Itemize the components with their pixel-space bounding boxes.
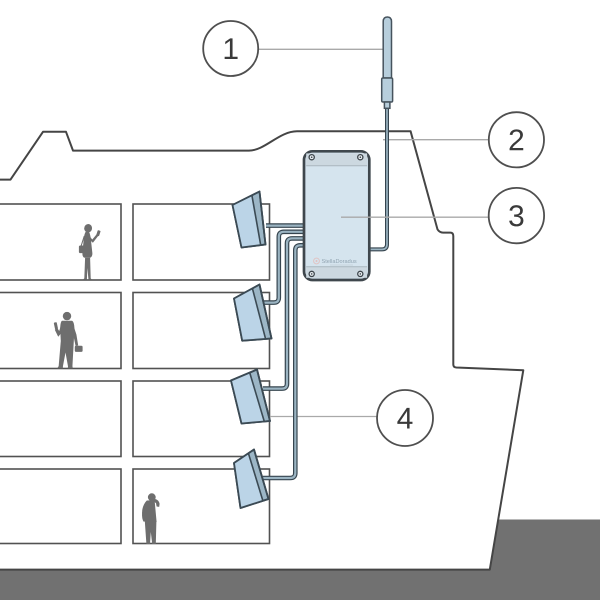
svg-text:StellaDoradus: StellaDoradus bbox=[322, 259, 357, 265]
